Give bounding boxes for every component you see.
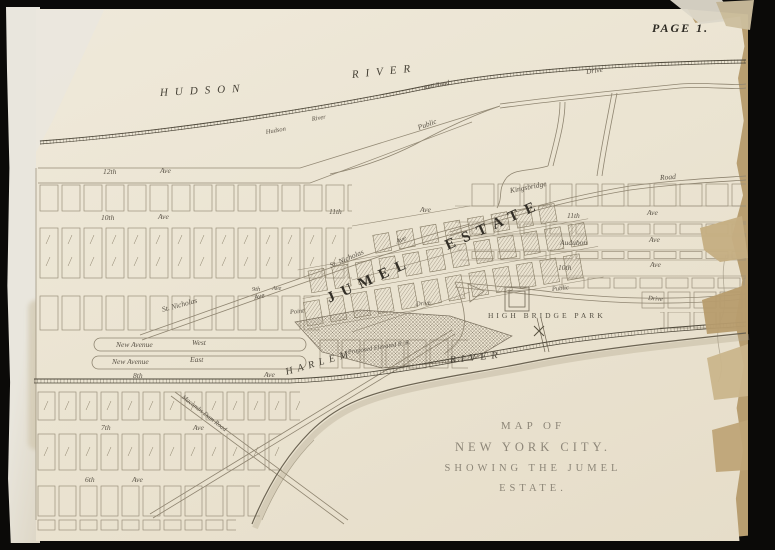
audubon-ave-label: Audubon <box>560 239 587 247</box>
ave-8-label: 8th <box>133 372 143 380</box>
ave-8-ave-label: Ave <box>264 371 275 379</box>
new-avenue-west-label-2: West <box>192 339 206 347</box>
new-avenue-east-label-2: East <box>190 356 203 364</box>
ave-12-label: 12th <box>103 168 116 176</box>
ave-12-ave-label: Ave <box>160 167 171 175</box>
ave-10-right-ave-label: Ave <box>650 261 661 269</box>
public-drive-label-park-2: Drive <box>648 296 663 304</box>
ave-6-ave-label: Ave <box>132 476 143 484</box>
ave-9-ave-label: Ave <box>272 286 281 293</box>
map-title-line-3: SHOWING THE JUMEL ESTATE. <box>408 459 658 498</box>
ave-11-center-label: 11th <box>329 208 342 216</box>
map-title-line-1: MAP OF <box>408 416 658 436</box>
scanned-map-page: PAGE 1. HUDSON RIVER HARLEM RIVER Hudson… <box>0 0 775 550</box>
ave-10-right-label: 10th <box>558 264 571 272</box>
new-avenue-west-label-1: New Avenue <box>116 341 153 349</box>
ave-10-left-ave-label: Ave <box>158 213 169 221</box>
high-bridge-park-label: HIGH BRIDGE PARK <box>488 312 606 320</box>
map-title-block: MAP OF NEW YORK CITY. SHOWING THE JUMEL … <box>408 416 658 498</box>
new-avenue-east-label-1: New Avenue <box>112 358 149 366</box>
ave-7-ave-label: Ave <box>193 424 204 432</box>
page-number: PAGE 1. <box>652 22 709 34</box>
audubon-ave-ave-label: Ave <box>649 236 660 244</box>
ave-6-label: 6th <box>85 476 95 484</box>
ave-9-label: 9th <box>252 287 260 294</box>
ave-11-right-ave-label: Ave <box>647 209 658 217</box>
ave-11-right-label: 11th <box>567 212 580 220</box>
map-title-line-2: NEW YORK CITY. <box>408 436 658 459</box>
ave-10-left-label: 10th <box>101 214 114 222</box>
ave-11-center-ave-label: Ave <box>420 206 431 214</box>
ave-7-label: 7th <box>101 424 111 432</box>
kingsbridge-road-label-2: Road <box>660 173 676 182</box>
